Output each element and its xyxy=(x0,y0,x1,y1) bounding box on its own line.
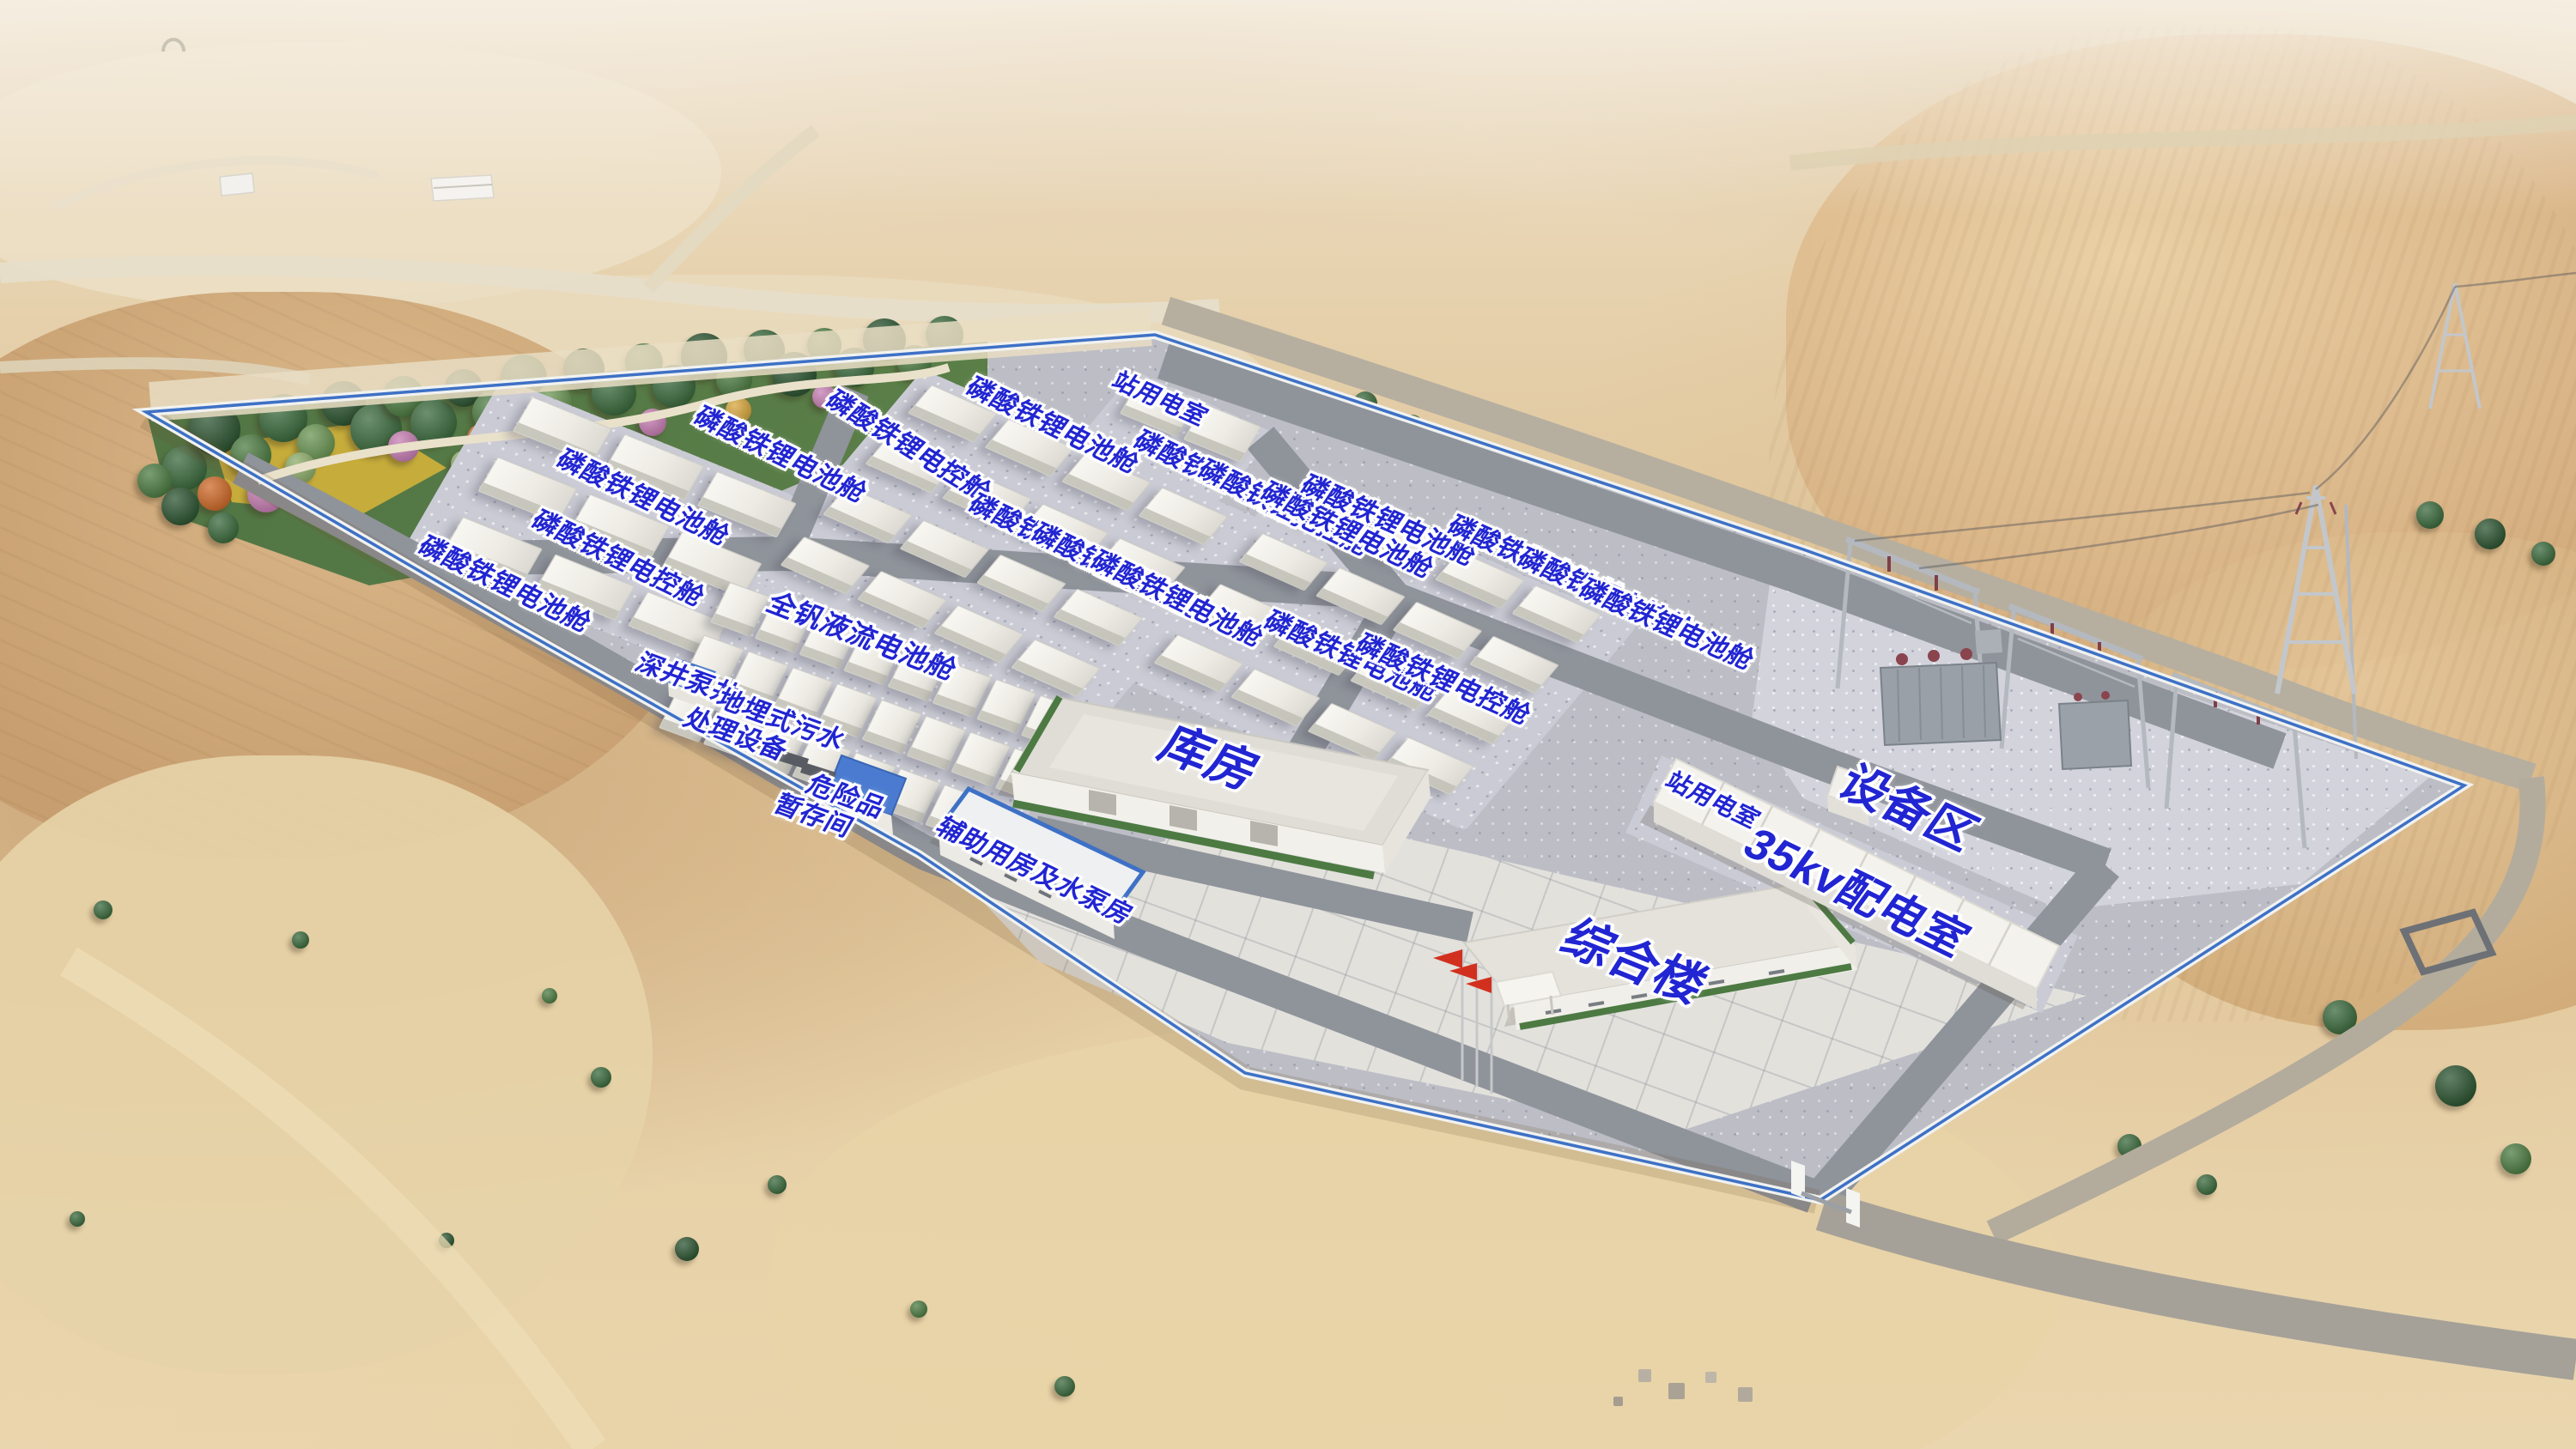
transmission-towers xyxy=(2277,283,2480,694)
flag-poles xyxy=(1433,949,1492,1094)
sewage-treatment-pads xyxy=(745,735,836,783)
red-flag xyxy=(1433,949,1462,968)
deep-well-pump-building xyxy=(668,659,714,709)
aerial-site-render: 磷酸铁锂电池舱磷酸铁锂电池舱磷酸铁锂电控舱磷酸铁锂电池舱磷酸铁锂电控舱磷酸铁锂电… xyxy=(0,0,2576,1449)
comprehensive-building xyxy=(1464,882,1857,1030)
red-flag xyxy=(1466,977,1492,993)
cable-trench xyxy=(2404,912,2492,972)
structures xyxy=(0,0,2576,1449)
secondary-transformer xyxy=(2059,700,2131,769)
power-lines xyxy=(1855,273,2576,568)
